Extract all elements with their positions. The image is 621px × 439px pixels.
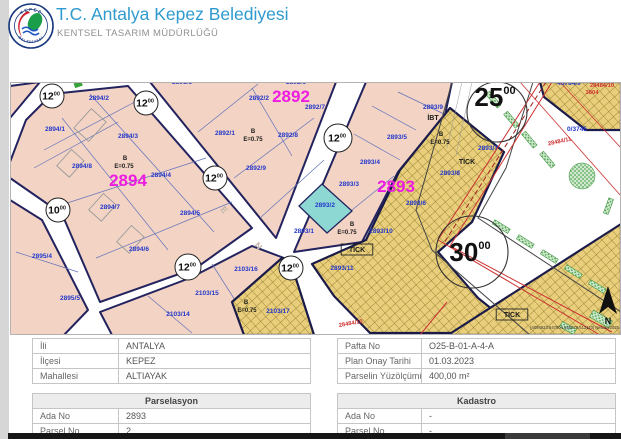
parcel-number-label: 2895/5 [60,295,80,302]
parcel-number-label: 2894/2 [89,95,109,102]
parcel-number-label: 2894/8 [72,163,92,170]
location-table: İliANTALYA İlçesiKEPEZ MahallesiALTIAYAK… [32,338,311,439]
zone-label: TİCK [504,311,520,319]
zoning-map[interactable]: N [4094923.847904,555879.513110] Netcad … [10,82,621,335]
parcel-number-label: 2893/5 [387,134,407,141]
zone-label: E=0.75 [430,140,450,146]
parcel-number-label: 2893/10 [369,228,393,235]
map-credit: [4094923.847904,555879.513110] Netcad 20… [530,325,619,330]
table-header-row: Parselasyon [33,394,311,409]
red-parcel-label: 3804 [586,90,600,96]
parcel-number-label: 2893/3 [339,181,359,188]
zone-label: E=0.75 [237,308,257,314]
zone-label: TİCK [349,246,365,254]
block-number-label: 2893 [377,177,415,196]
plan-table: Pafta NoO25-B-01-A-4-A Plan Onay Tarihi0… [337,338,616,439]
parcel-number-label: 2892/1 [215,130,235,137]
zone-label: B [439,132,444,138]
table-row: İlçesiKEPEZ [33,354,311,369]
window-edge [0,0,9,439]
zone-label: E=0.75 [337,230,357,236]
parcel-number-label: 2893/4 [360,159,380,166]
table-row: Parselin Yüzölçümü400,00 m² [338,369,616,384]
table-row: Ada No- [338,409,616,424]
block-number-label: 2894 [109,171,147,190]
red-parcel-label: 28484/10 [590,83,614,89]
block-number-label: 2892 [272,87,310,106]
parcel-number-label: 2894/3 [118,133,138,140]
kepez-logo: KEPEZ BELEDİYESİ [8,3,54,49]
zone-label: B [123,156,128,162]
parcel-number-label: 2893/8 [440,170,460,177]
zone-label: B [251,129,256,135]
parcel-number-label: 2894/7 [100,204,120,211]
parcel-number-label: 2892/8 [278,132,298,139]
parcel-number-label: 2893/2 [315,202,335,209]
parcel-number-label: 2103/16 [234,266,258,273]
table-row: Plan Onay Tarihi01.03.2023 [338,354,616,369]
parcel-number-label: 2893/9 [423,104,443,111]
zone-label: B [244,300,249,306]
parcel-number-label: 2894/1 [45,126,65,133]
parcel-number-label: 2893/11 [330,265,354,272]
parcel-number-label: 2894/5 [180,210,200,217]
page-title: T.C. Antalya Kepez Belediyesi [56,4,289,25]
parcel-number-label: 2103/17 [266,308,290,315]
table-row: MahallesiALTIAYAK [33,369,311,384]
parcel-number-label: 2892/2 [249,95,269,102]
parcel-number-label: 2103/14 [166,311,190,318]
table-row: Pafta NoO25-B-01-A-4-A [338,339,616,354]
table-row: Ada No2893 [33,409,311,424]
zone-label: B [350,222,355,228]
parcel-number-label: 2103/15 [195,290,219,297]
parcel-number-label: 2893/6 [406,200,426,207]
parcel-number-label: 2892/9 [246,165,266,172]
zone-label: E=0.75 [114,164,134,170]
bottom-bar [8,433,621,439]
parcel-number-label: 2894/4 [151,172,171,179]
table-header-row: Kadastro [338,394,616,409]
parcel-number-label: 2893/7 [478,145,498,152]
parcel-number-label: 2893/1 [294,228,314,235]
parcel-number-label: 0/3745 [567,126,587,133]
zone-label: İBT [427,114,439,122]
page-subtitle: KENTSEL TASARIM MÜDÜRLÜĞÜ [57,28,218,39]
parcel-number-label: 2894/6 [129,246,149,253]
zone-label: E=0.75 [243,137,263,143]
parcel-number-label: 2895/4 [32,253,52,260]
zone-label: TİCK [459,158,475,166]
table-row: İliANTALYA [33,339,311,354]
